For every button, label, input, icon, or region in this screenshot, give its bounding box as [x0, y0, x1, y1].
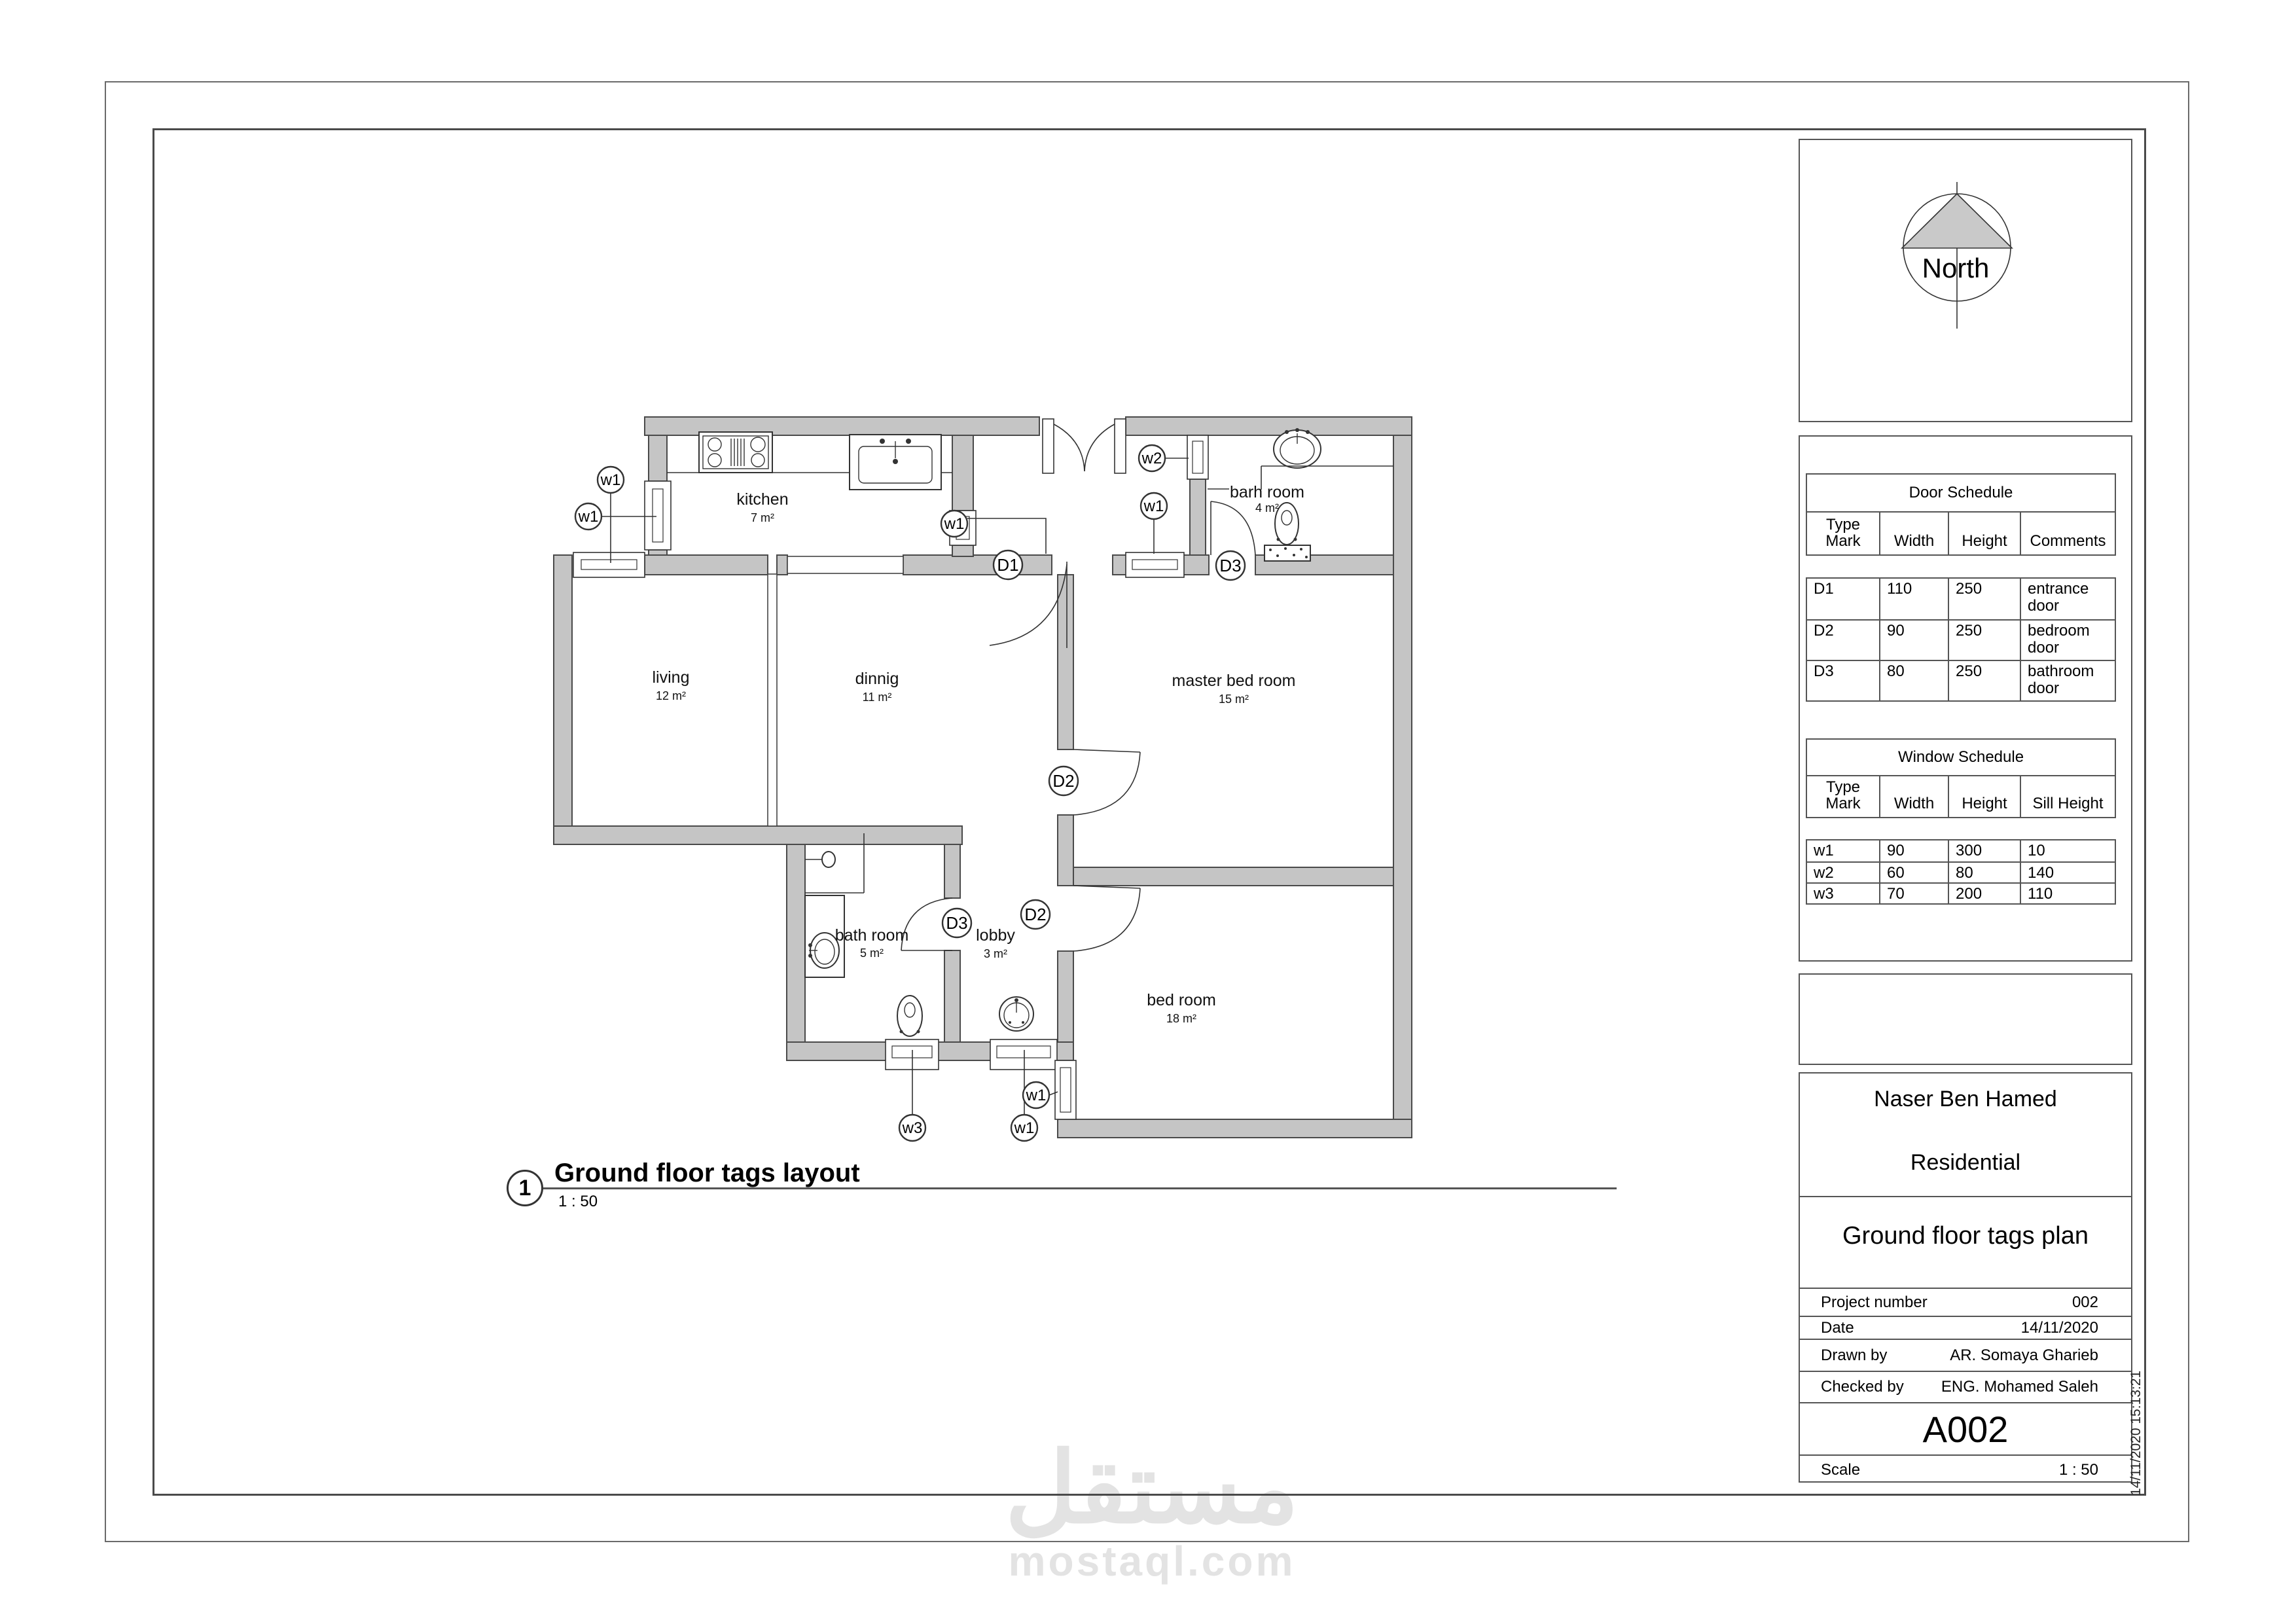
field-label: Date: [1821, 1319, 1854, 1337]
door-mark: D2: [1807, 621, 1879, 660]
window-schedule-title: Window Schedule: [1807, 740, 2115, 776]
door-col-type-mark: Type Mark: [1807, 513, 1879, 554]
door-height: 250: [1948, 661, 2020, 700]
revision-box: [1799, 973, 2132, 1065]
table-row: D3 80 250 bathroom door: [1807, 660, 2115, 700]
door-width: 90: [1879, 621, 1948, 660]
table-row: w3 70 200 110: [1807, 882, 2115, 903]
door-mark: D3: [1807, 661, 1879, 700]
door-height: 250: [1948, 579, 2020, 619]
sheet-number: A002: [1800, 1402, 2131, 1454]
field-value: AR. Somaya Gharieb: [1950, 1346, 2098, 1365]
door-schedule-rows: D1 110 250 entrance door D2 90 250 bedro…: [1806, 577, 2116, 702]
door-schedule-title: Door Schedule: [1807, 475, 2115, 513]
door-comments: bedroom door: [2020, 621, 2115, 660]
field-label: Project number: [1821, 1293, 1928, 1312]
door-mark: D1: [1807, 579, 1879, 619]
scale-label: Scale: [1821, 1461, 1860, 1479]
watermark-latin: mostaql.com: [942, 1540, 1361, 1582]
door-comments: bathroom door: [2020, 661, 2115, 700]
view-number-bubble: 1: [507, 1170, 543, 1206]
door-height: 250: [1948, 621, 2020, 660]
drawn-by-row: Drawn by AR. Somaya Gharieb: [1800, 1339, 2131, 1371]
door-schedule-header: Door Schedule Type Mark Width Height Com…: [1806, 473, 2116, 556]
field-value: 002: [2072, 1293, 2098, 1312]
print-timestamp: 14/11/2020 15:13:21: [2128, 1332, 2144, 1496]
table-row: D2 90 250 bedroom door: [1807, 619, 2115, 660]
date-row: Date 14/11/2020: [1800, 1316, 2131, 1339]
window-mark: w2: [1807, 863, 1879, 882]
field-label: Checked by: [1821, 1378, 1904, 1396]
window-schedule-rows: w1 90 300 10 w2 60 80 140 w3 70 200 110: [1806, 839, 2116, 905]
title-block: Naser Ben Hamed Residential Ground floor…: [1799, 1072, 2132, 1483]
table-row: w1 90 300 10: [1807, 840, 2115, 861]
door-width: 110: [1879, 579, 1948, 619]
window-sill: 110: [2020, 884, 2115, 903]
door-col-width: Width: [1879, 513, 1948, 554]
drawing-sheet: مستقل mostaql.com Door Schedule Type Mar…: [0, 0, 2296, 1624]
door-col-comments: Comments: [2020, 513, 2115, 554]
view-title-underline: [543, 1187, 1617, 1189]
door-col-height: Height: [1948, 513, 2020, 554]
door-comments: entrance door: [2020, 579, 2115, 619]
window-sill: 10: [2020, 840, 2115, 861]
field-label: Drawn by: [1821, 1346, 1887, 1365]
view-scale: 1 : 50: [558, 1193, 598, 1211]
sheet-name: Ground floor tags plan: [1800, 1197, 2131, 1288]
window-col-width: Width: [1879, 776, 1948, 817]
window-col-height: Height: [1948, 776, 2020, 817]
table-row: D1 110 250 entrance door: [1807, 579, 2115, 619]
window-width: 90: [1879, 840, 1948, 861]
scale-value: 1 : 50: [2059, 1461, 2098, 1479]
view-title: Ground floor tags layout: [554, 1159, 860, 1188]
owner-section: Naser Ben Hamed Residential: [1800, 1074, 2131, 1197]
project-name: Residential: [1800, 1112, 2131, 1176]
window-width: 60: [1879, 863, 1948, 882]
field-value: ENG. Mohamed Saleh: [1941, 1378, 2098, 1396]
window-sill: 140: [2020, 863, 2115, 882]
window-mark: w3: [1807, 884, 1879, 903]
window-height: 80: [1948, 863, 2020, 882]
field-value: 14/11/2020: [2021, 1319, 2098, 1337]
door-width: 80: [1879, 661, 1948, 700]
window-height: 200: [1948, 884, 2020, 903]
window-mark: w1: [1807, 840, 1879, 861]
window-col-sill-height: Sill Height: [2020, 776, 2115, 817]
window-col-type-mark: Type Mark: [1807, 776, 1879, 817]
scale-row: Scale 1 : 50: [1800, 1454, 2131, 1484]
project-number-row: Project number 002: [1800, 1288, 2131, 1316]
window-width: 70: [1879, 884, 1948, 903]
window-height: 300: [1948, 840, 2020, 861]
checked-by-row: Checked by ENG. Mohamed Saleh: [1800, 1371, 2131, 1402]
window-schedule-header: Window Schedule Type Mark Width Height S…: [1806, 738, 2116, 818]
north-arrow-box: [1799, 139, 2132, 422]
owner-name: Naser Ben Hamed: [1800, 1074, 2131, 1112]
table-row: w2 60 80 140: [1807, 861, 2115, 882]
